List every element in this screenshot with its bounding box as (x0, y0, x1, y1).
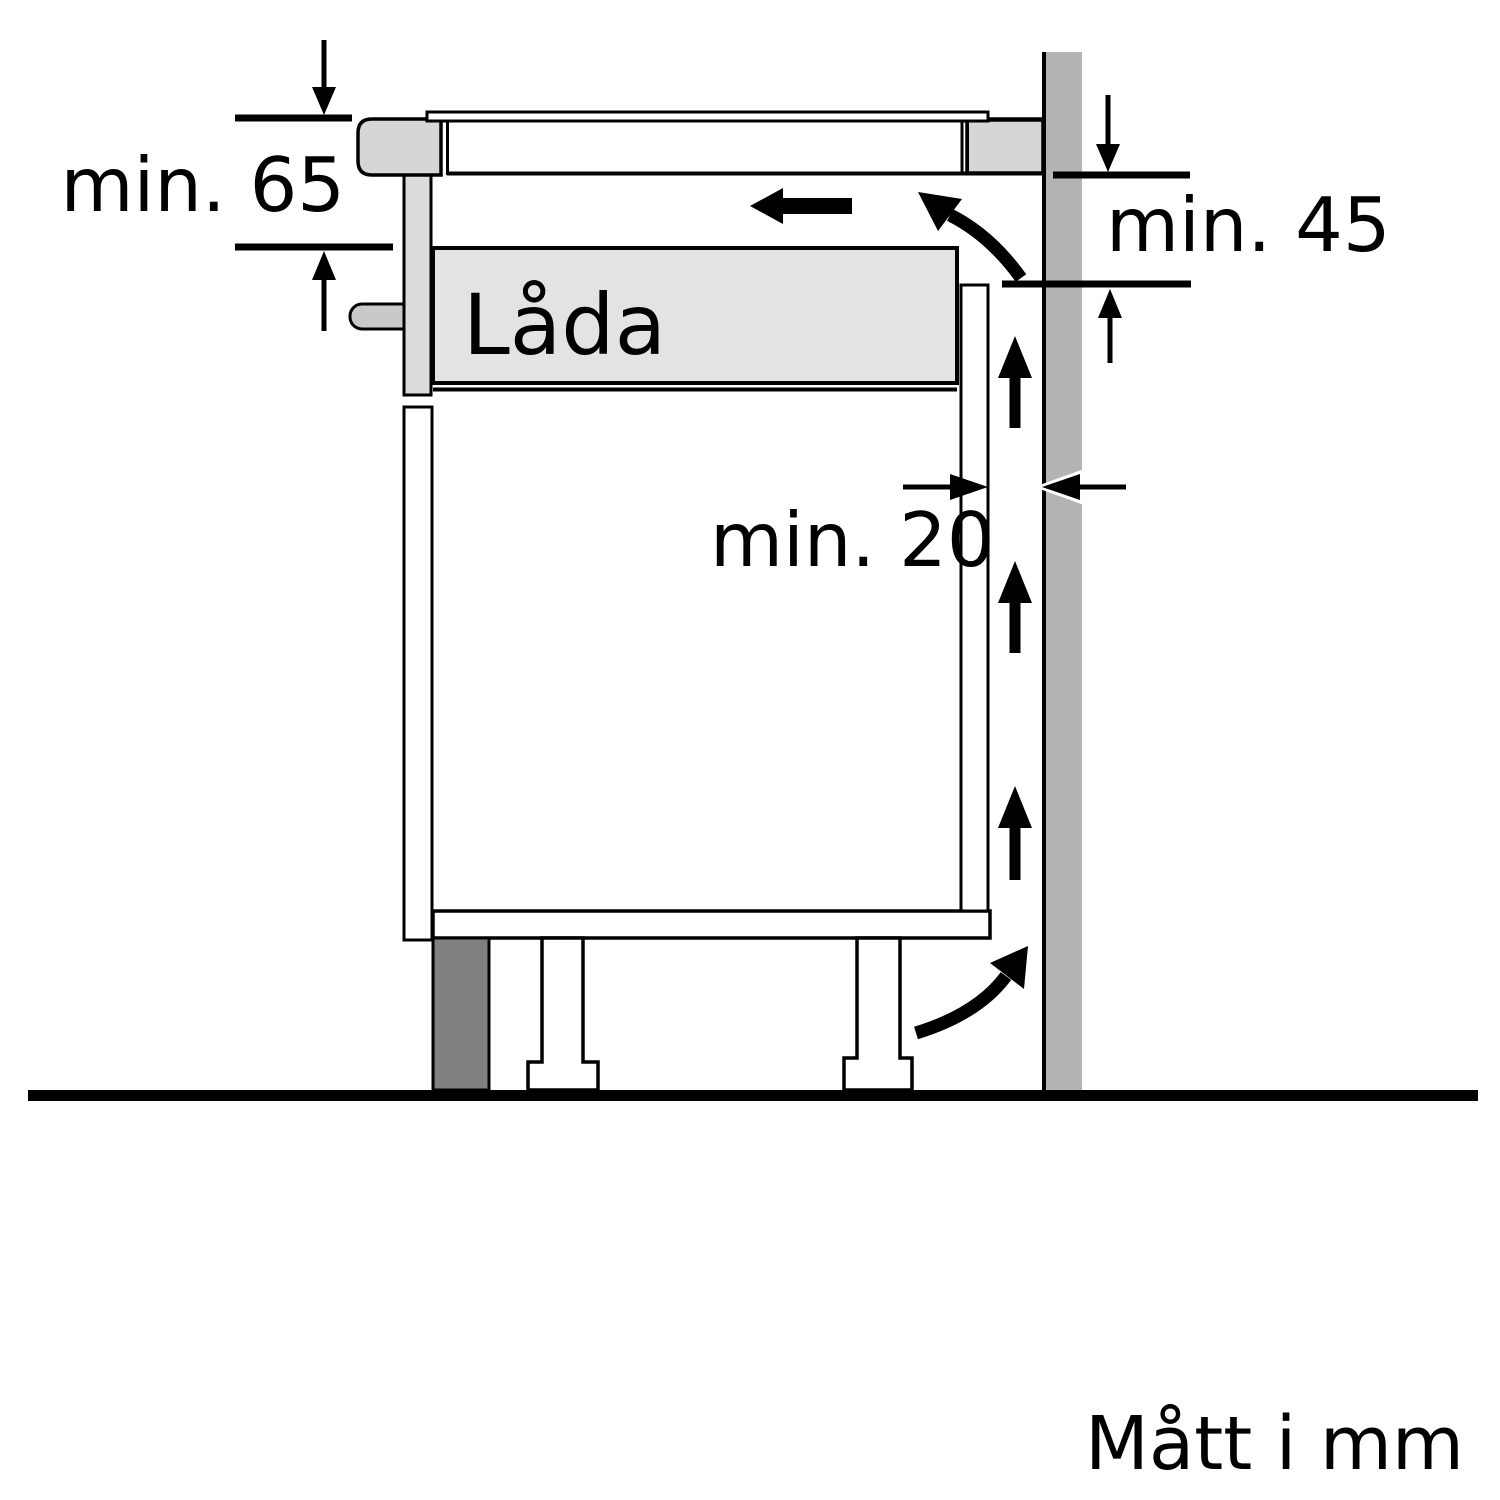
worktop-left-section (358, 119, 441, 175)
units-label: Mått i mm (1085, 1401, 1464, 1487)
airflow-left-arrow-icon (750, 188, 852, 224)
dimension-arrow-down-icon (312, 40, 336, 115)
dimension-arrow-down-icon (1096, 95, 1120, 172)
cabinet-left-wall (404, 407, 432, 940)
cabinet-leg-rear (844, 938, 912, 1090)
plinth-panel (433, 938, 489, 1090)
cabinet-back-partition (961, 285, 988, 911)
airflow-up-arrow-2-icon (998, 561, 1032, 653)
dimension-min-65: min. 65 (60, 40, 393, 331)
wall (1045, 52, 1082, 1090)
cabinet-bottom (433, 911, 990, 938)
min-20-label: min. 20 (710, 496, 995, 584)
airflow-curved-arrow-bottom-icon (916, 946, 1028, 1033)
cabinet-leg-front (528, 938, 598, 1090)
hob-side-rail (404, 173, 431, 395)
installation-diagram: min. 65 min. 45 (0, 0, 1500, 1500)
worktop-right-section (967, 119, 1043, 173)
min-65-label: min. 65 (60, 141, 345, 229)
min-45-label: min. 45 (1106, 181, 1391, 269)
hob-glass-top (427, 112, 988, 121)
airflow-up-arrow-3-icon (998, 786, 1032, 880)
drawer-label: Låda (463, 276, 666, 374)
airflow-up-arrow-1-icon (998, 336, 1032, 428)
dimension-arrow-up-icon (1098, 289, 1122, 363)
dimension-arrow-up-icon (312, 251, 336, 331)
diagram-drawing: min. 65 min. 45 (0, 0, 1500, 1500)
